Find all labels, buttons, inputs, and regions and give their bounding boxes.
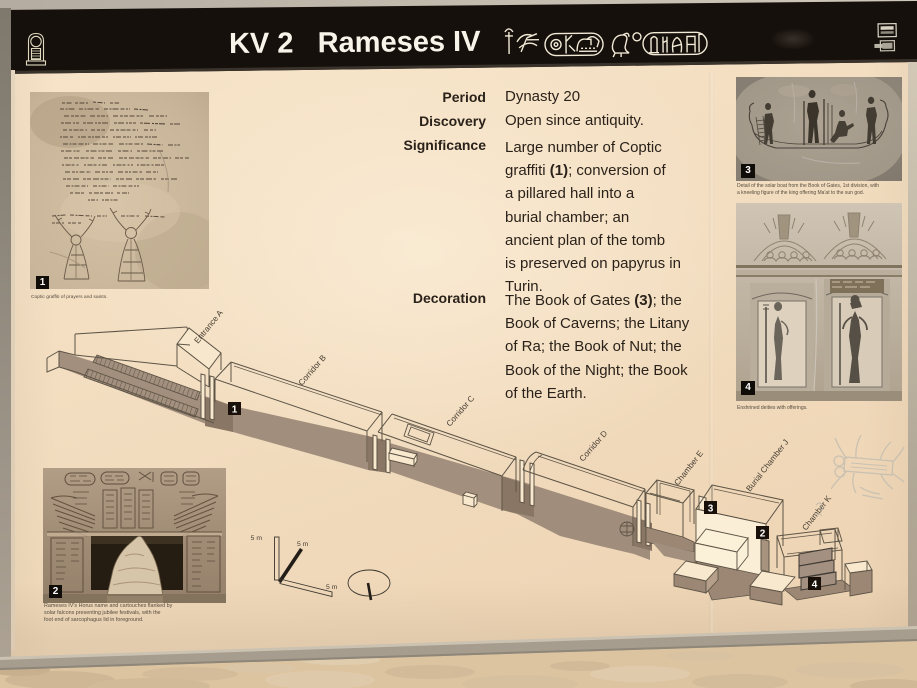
svg-text:Burial Chamber J: Burial Chamber J: [744, 438, 790, 493]
svg-text:Detail of the solar boat from: Detail of the solar boat from the Book o…: [737, 183, 879, 189]
svg-text:2: 2: [760, 529, 766, 540]
svg-text:Chamber K: Chamber K: [800, 494, 833, 533]
svg-text:5 m: 5 m: [251, 535, 263, 542]
svg-text:a kneeling figure of the king: a kneeling figure of the king offering M…: [737, 190, 864, 196]
svg-text:3: 3: [708, 504, 714, 515]
svg-text:4: 4: [812, 580, 818, 591]
svg-text:Entrance A: Entrance A: [193, 308, 226, 345]
svg-text:Corridor D: Corridor D: [578, 429, 610, 463]
svg-text:5 m: 5 m: [297, 541, 309, 548]
svg-text:1: 1: [232, 405, 238, 416]
svg-text:Corridor C: Corridor C: [445, 394, 477, 428]
svg-text:Chamber E: Chamber E: [672, 449, 705, 488]
svg-text:Corridor B: Corridor B: [297, 353, 329, 387]
svg-text:5 m: 5 m: [326, 584, 338, 591]
